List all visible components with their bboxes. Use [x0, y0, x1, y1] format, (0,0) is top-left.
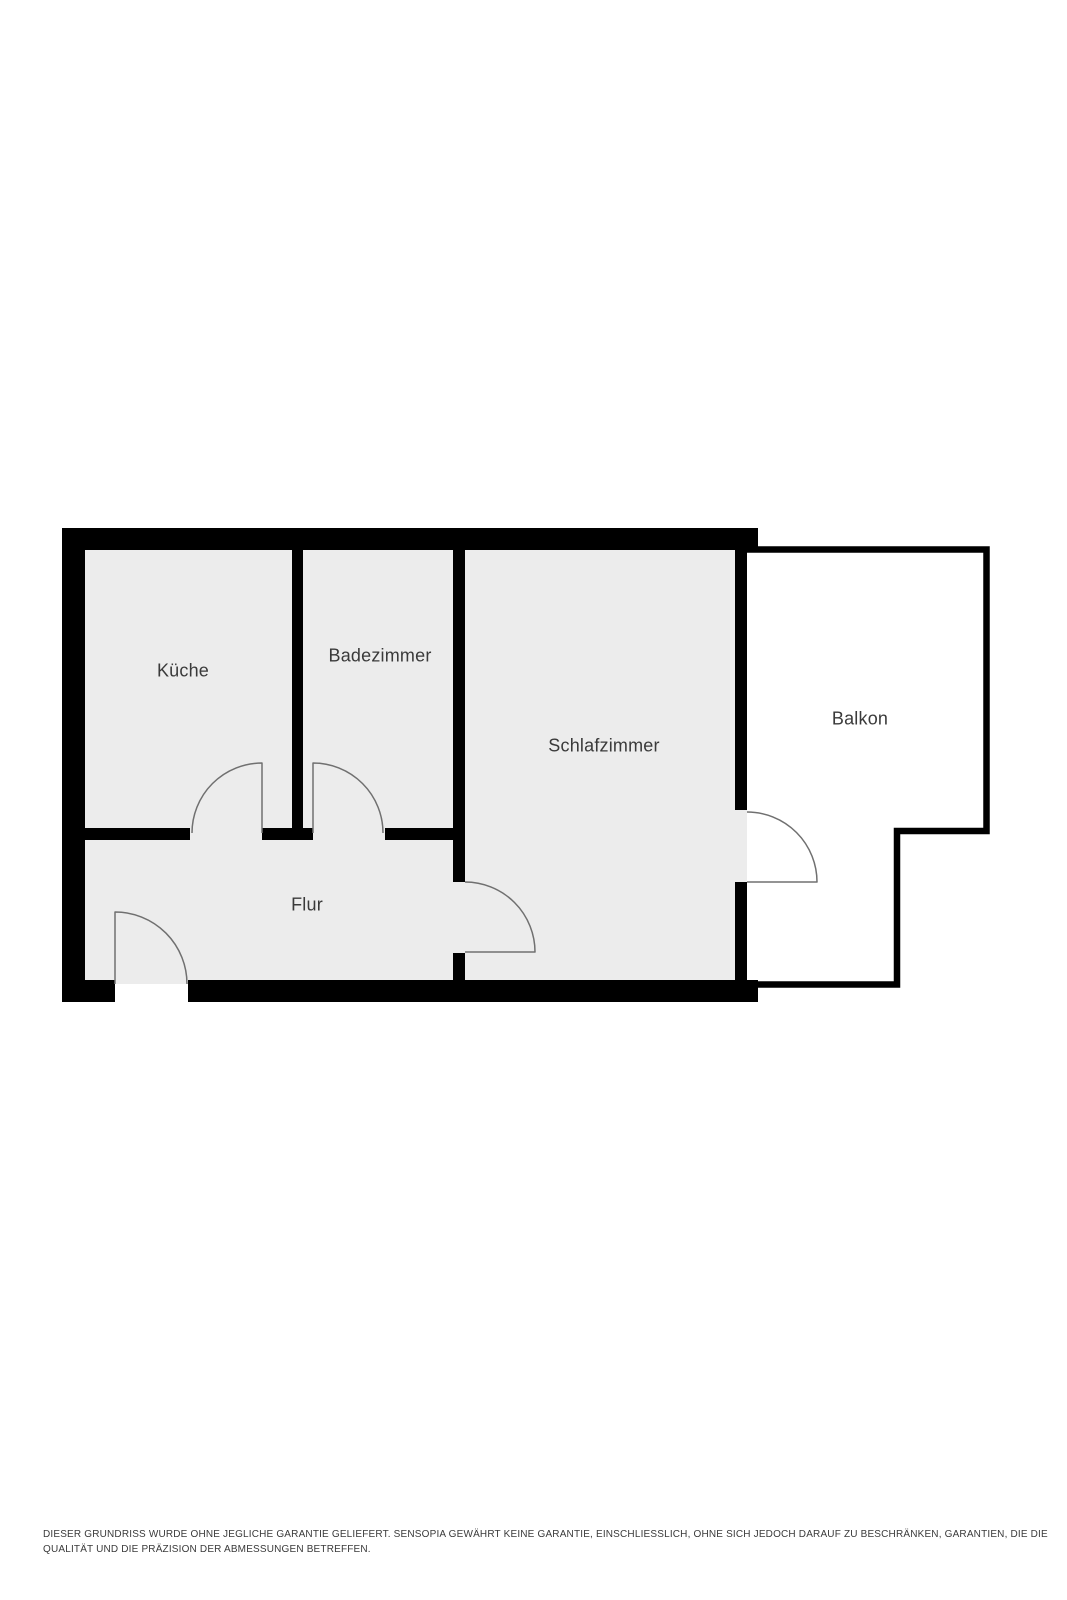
- wall-bottom: [188, 980, 758, 1002]
- balkon-outline: [747, 550, 987, 985]
- wall-left: [62, 528, 85, 1002]
- room-floors: [85, 550, 747, 980]
- schlafzimmer-doorway-gap: [453, 882, 465, 953]
- wall-kueche-badezimmer: [292, 550, 303, 840]
- wall-bottom-left-of-entry: [62, 980, 115, 1002]
- disclaimer-line-2: QUALITÄT UND DIE PRÄZISION DER ABMESSUNG…: [43, 1542, 1033, 1557]
- wall-schlafzimmer-right-lower: [735, 882, 747, 980]
- balkon-door-swing: [747, 812, 817, 882]
- room-label-flur: Flur: [291, 895, 323, 916]
- wall-top: [62, 528, 758, 550]
- wall-flur-middle-segment: [262, 828, 313, 840]
- wall-flur-left-segment: [85, 828, 190, 840]
- wall-schlafzimmer-right-upper: [735, 550, 747, 810]
- disclaimer-text: DIESER GRUNDRISS WURDE OHNE JEGLICHE GAR…: [43, 1527, 1033, 1557]
- balkon-doorway-gap: [735, 810, 747, 882]
- room-label-schlafzimmer: Schlafzimmer: [548, 736, 659, 757]
- room-label-balkon: Balkon: [832, 709, 888, 730]
- wall-flur-schlafzimmer-stub: [453, 953, 465, 980]
- wall-flur-right-segment: [385, 828, 465, 840]
- room-label-kueche: Küche: [157, 661, 209, 682]
- room-label-badezimmer: Badezimmer: [328, 646, 431, 667]
- floorplan-page: Küche Badezimmer Schlafzimmer Flur Balko…: [0, 0, 1067, 1600]
- disclaimer-line-1: DIESER GRUNDRISS WURDE OHNE JEGLICHE GAR…: [43, 1527, 1033, 1542]
- floorplan-drawing: [0, 0, 1067, 1600]
